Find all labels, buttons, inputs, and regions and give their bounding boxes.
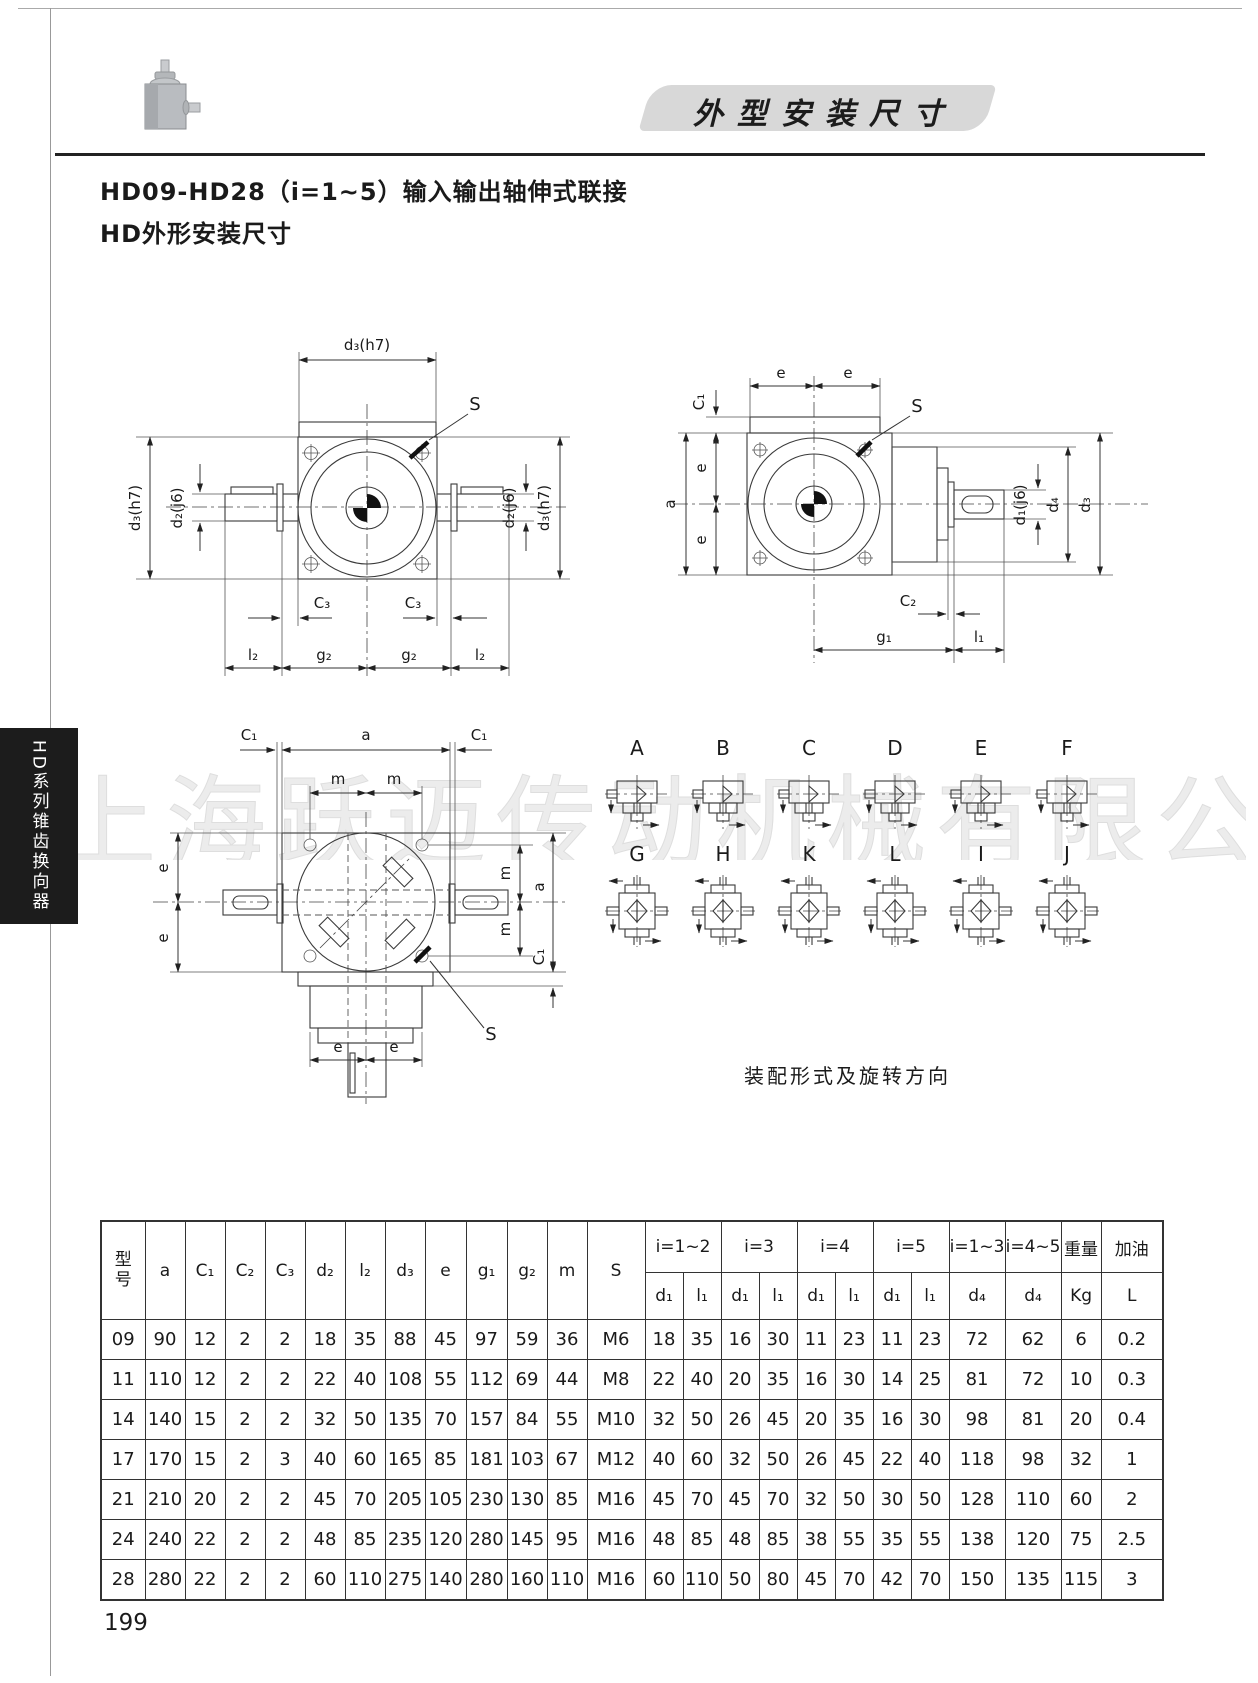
assembly-row-1: A B C D E F: [596, 736, 1108, 836]
svg-text:C₁: C₁: [690, 394, 708, 411]
table-cell: 128: [949, 1480, 1005, 1520]
table-cell: 240: [145, 1520, 185, 1560]
table-cell: 42: [873, 1560, 911, 1601]
table-cell: 11: [797, 1320, 835, 1360]
table-cell: 2: [225, 1560, 265, 1601]
assembly-row-2: G H K L I J: [596, 842, 1108, 954]
svg-text:e: e: [692, 535, 710, 544]
table-cell: 18: [645, 1320, 683, 1360]
table-cell: 110: [547, 1560, 587, 1601]
group-header-i4: i=4: [797, 1221, 873, 1273]
table-cell: 70: [345, 1480, 385, 1520]
gearbox-cross-icon: [1035, 868, 1099, 954]
svg-text:m: m: [331, 770, 346, 788]
assembly-form-f: F: [1026, 736, 1108, 836]
table-cell: 85: [683, 1520, 721, 1560]
table-cell: 72: [949, 1320, 1005, 1360]
table-cell: M16: [587, 1520, 645, 1560]
table-cell: M10: [587, 1400, 645, 1440]
table-cell: 2: [225, 1520, 265, 1560]
table-cell: 48: [645, 1520, 683, 1560]
table-cell: 165: [385, 1440, 425, 1480]
svg-text:C₁: C₁: [471, 726, 488, 744]
table-cell: 45: [797, 1560, 835, 1601]
table-cell: 22: [873, 1440, 911, 1480]
table-cell: 22: [185, 1520, 225, 1560]
table-cell: 21: [101, 1480, 145, 1520]
table-cell: 20: [185, 1480, 225, 1520]
table-cell: 70: [911, 1560, 949, 1601]
svg-text:m: m: [496, 922, 514, 937]
table-cell: 16: [797, 1360, 835, 1400]
svg-text:C₂: C₂: [900, 592, 917, 610]
table-cell: 2: [225, 1480, 265, 1520]
col-header-d3: d₃: [385, 1221, 425, 1320]
table-cell: 11: [101, 1360, 145, 1400]
bevel-gears: [319, 857, 415, 949]
page-number: 199: [104, 1610, 148, 1636]
drawing-side-view: e e C₁ a e e S d₁(j6) d₄ d₃: [618, 318, 1163, 670]
table-cell: 98: [949, 1400, 1005, 1440]
col-header-c2: C₂: [225, 1221, 265, 1320]
table-cell: 235: [385, 1520, 425, 1560]
table-cell: 150: [949, 1560, 1005, 1601]
table-row: 17170152340601658518110367M1240603250264…: [101, 1440, 1163, 1480]
table-cell: 60: [645, 1560, 683, 1601]
col-header-c1: C₁: [185, 1221, 225, 1320]
sub-header-d1: d₁: [645, 1273, 683, 1320]
table-cell: 35: [873, 1520, 911, 1560]
table-cell: 45: [305, 1480, 345, 1520]
table-cell: 30: [911, 1400, 949, 1440]
table-cell: 18: [305, 1320, 345, 1360]
table-cell: 35: [345, 1320, 385, 1360]
table-cell: 36: [547, 1320, 587, 1360]
table-cell: 275: [385, 1560, 425, 1601]
sub-header-l1: l₁: [911, 1273, 949, 1320]
group-header-oil: 加油: [1101, 1221, 1163, 1273]
svg-text:d₃(h7): d₃(h7): [535, 485, 553, 531]
sub-header-d1: d₁: [721, 1273, 759, 1320]
table-cell: 2: [265, 1560, 305, 1601]
table-cell: 40: [345, 1360, 385, 1400]
sub-header-d4: d₄: [949, 1273, 1005, 1320]
table-cell: 40: [305, 1440, 345, 1480]
table-cell: 30: [759, 1320, 797, 1360]
table-row: 212102022457020510523013085M164570457032…: [101, 1480, 1163, 1520]
table-cell: 26: [797, 1440, 835, 1480]
table-cell: 6: [1061, 1320, 1101, 1360]
gearbox-t-icon: [863, 762, 927, 836]
table-cell: 3: [265, 1440, 305, 1480]
table-cell: 62: [1005, 1320, 1061, 1360]
sub-header-l: L: [1101, 1273, 1163, 1320]
gearbox-cross-icon: [691, 868, 755, 954]
table-cell: M16: [587, 1480, 645, 1520]
table-cell: 95: [547, 1520, 587, 1560]
svg-text:d₃(h7): d₃(h7): [126, 485, 144, 531]
gearbox-t-icon: [605, 762, 669, 836]
table-cell: 60: [345, 1440, 385, 1480]
table-cell: 110: [145, 1360, 185, 1400]
table-cell: 11: [873, 1320, 911, 1360]
table-cell: 67: [547, 1440, 587, 1480]
svg-text:m: m: [387, 770, 402, 788]
sub-header-d1: d₁: [797, 1273, 835, 1320]
assembly-caption: 装配形式及旋转方向: [744, 1060, 951, 1089]
group-header-i1-2: i=1~2: [645, 1221, 721, 1273]
svg-text:C₁: C₁: [530, 949, 548, 966]
table-cell: 45: [645, 1480, 683, 1520]
assembly-form-a: A: [596, 736, 678, 836]
table-cell: 20: [1061, 1400, 1101, 1440]
table-cell: 120: [425, 1520, 466, 1560]
table-cell: 70: [759, 1480, 797, 1520]
svg-text:S: S: [485, 1024, 496, 1045]
col-header-s: S: [587, 1221, 645, 1320]
table-cell: 160: [507, 1560, 547, 1601]
col-header-c3: C₃: [265, 1221, 305, 1320]
col-header-l2: l₂: [345, 1221, 385, 1320]
page-top-border: [18, 8, 1242, 9]
table-cell: 70: [835, 1560, 873, 1601]
table-cell: 181: [466, 1440, 507, 1480]
table-cell: 45: [721, 1480, 759, 1520]
table-cell: 20: [721, 1360, 759, 1400]
table-cell: 0.2: [1101, 1320, 1163, 1360]
assembly-form-e: E: [940, 736, 1022, 836]
table-cell: 135: [1005, 1560, 1061, 1601]
svg-text:a: a: [661, 499, 679, 508]
table-cell: 85: [547, 1480, 587, 1520]
gearbox-t-icon: [1035, 762, 1099, 836]
svg-text:a: a: [361, 726, 370, 744]
table-cell: 45: [759, 1400, 797, 1440]
svg-text:d₄: d₄: [1044, 497, 1062, 513]
sub-header-l1: l₁: [683, 1273, 721, 1320]
table-cell: 22: [645, 1360, 683, 1400]
table-cell: 14: [101, 1400, 145, 1440]
gearbox-t-icon: [777, 762, 841, 836]
table-cell: 55: [425, 1360, 466, 1400]
table-cell: 2: [265, 1360, 305, 1400]
svg-text:e: e: [154, 863, 172, 872]
svg-text:a: a: [530, 882, 548, 891]
table-cell: 85: [759, 1520, 797, 1560]
col-header-m: m: [547, 1221, 587, 1320]
table-cell: 205: [385, 1480, 425, 1520]
table-cell: 210: [145, 1480, 185, 1520]
table-cell: 38: [797, 1520, 835, 1560]
table-cell: M6: [587, 1320, 645, 1360]
svg-text:e: e: [843, 364, 852, 382]
table-cell: 60: [683, 1440, 721, 1480]
table-cell: 35: [759, 1360, 797, 1400]
table-cell: 09: [101, 1320, 145, 1360]
table-cell: 32: [645, 1400, 683, 1440]
table-row: 242402222488523512028014595M164885488538…: [101, 1520, 1163, 1560]
table-cell: 280: [145, 1560, 185, 1601]
table-cell: 15: [185, 1400, 225, 1440]
gearbox-cross-icon: [777, 868, 841, 954]
table-cell: 50: [911, 1480, 949, 1520]
svg-text:d₃: d₃: [1076, 497, 1094, 513]
assembly-form-d: D: [854, 736, 936, 836]
table-cell: 120: [1005, 1520, 1061, 1560]
table-cell: 44: [547, 1360, 587, 1400]
table-cell: 85: [425, 1440, 466, 1480]
table-cell: 112: [466, 1360, 507, 1400]
table-cell: 23: [911, 1320, 949, 1360]
table-cell: 30: [835, 1360, 873, 1400]
table-cell: 85: [345, 1520, 385, 1560]
table-cell: 1: [1101, 1440, 1163, 1480]
table-cell: 14: [873, 1360, 911, 1400]
table-cell: 24: [101, 1520, 145, 1560]
table-cell: 2: [225, 1440, 265, 1480]
drawing-top-view: C₁ a C₁ m m e e m m a C₁ e e: [108, 662, 590, 1114]
gearbox-t-icon: [691, 762, 755, 836]
table-cell: 70: [683, 1480, 721, 1520]
table-cell: 110: [345, 1560, 385, 1601]
sidebar-series-tab: HD系列锥齿换向器: [0, 728, 78, 924]
svg-text:S: S: [469, 394, 480, 415]
table-cell: 103: [507, 1440, 547, 1480]
sub-header-d4: d₄: [1005, 1273, 1061, 1320]
col-header-model: 型 号: [101, 1221, 145, 1320]
table-row: 0990122218358845975936M61835163011231123…: [101, 1320, 1163, 1360]
group-header-i3: i=3: [721, 1221, 797, 1273]
table-cell: 35: [835, 1400, 873, 1440]
table-cell: 105: [425, 1480, 466, 1520]
svg-text:e: e: [333, 1038, 342, 1056]
table-cell: 3: [1101, 1560, 1163, 1601]
table-cell: 22: [185, 1560, 225, 1601]
table-cell: 98: [1005, 1440, 1061, 1480]
table-cell: 88: [385, 1320, 425, 1360]
table-cell: 108: [385, 1360, 425, 1400]
table-cell: 20: [797, 1400, 835, 1440]
product-photo: [126, 58, 204, 148]
table-cell: 50: [721, 1560, 759, 1601]
table-cell: 40: [683, 1360, 721, 1400]
assembly-forms: A B C D E F G H K L I J: [596, 736, 1108, 960]
group-header-i5: i=5: [873, 1221, 949, 1273]
table-cell: 280: [466, 1560, 507, 1601]
table-cell: 45: [835, 1440, 873, 1480]
table-cell: 55: [547, 1400, 587, 1440]
table-cell: 130: [507, 1480, 547, 1520]
svg-text:e: e: [154, 933, 172, 942]
group-header-i4-5: i=4~5: [1005, 1221, 1061, 1273]
svg-text:g₁: g₁: [876, 628, 892, 646]
table-cell: 12: [185, 1360, 225, 1400]
table-cell: 22: [305, 1360, 345, 1400]
table-cell: 55: [835, 1520, 873, 1560]
table-cell: 15: [185, 1440, 225, 1480]
table-cell: 75: [1061, 1520, 1101, 1560]
group-header-weight: 重量: [1061, 1221, 1101, 1273]
doc-title-line1: HD09-HD28（i=1~5）输入输出轴伸式联接: [100, 172, 628, 207]
svg-text:e: e: [692, 463, 710, 472]
table-cell: 16: [873, 1400, 911, 1440]
table-cell: 45: [425, 1320, 466, 1360]
table-cell: M16: [587, 1560, 645, 1601]
table-cell: 2: [225, 1360, 265, 1400]
table-cell: 97: [466, 1320, 507, 1360]
table-cell: 170: [145, 1440, 185, 1480]
gearbox-cross-icon: [949, 868, 1013, 954]
table-row: 1111012222240108551126944M82240203516301…: [101, 1360, 1163, 1400]
table-cell: 140: [425, 1560, 466, 1601]
assembly-form-k: K: [768, 842, 850, 954]
header-rule: [55, 153, 1205, 156]
table-cell: 157: [466, 1400, 507, 1440]
table-cell: 17: [101, 1440, 145, 1480]
dimensions-table: 型 号 a C₁ C₂ C₃ d₂ l₂ d₃ e g₁ g₂ m S i=1~…: [100, 1220, 1164, 1601]
assembly-form-g: G: [596, 842, 678, 954]
col-header-d2: d₂: [305, 1221, 345, 1320]
table-body: 0990122218358845975936M61835163011231123…: [101, 1320, 1163, 1601]
table-cell: 2: [225, 1400, 265, 1440]
sidebar-series-label: HD系列锥齿换向器: [27, 740, 52, 912]
svg-text:d₂(j6): d₂(j6): [168, 488, 186, 529]
table-cell: 118: [949, 1440, 1005, 1480]
gearbox-cross-icon: [863, 868, 927, 954]
col-header-g1: g₁: [466, 1221, 507, 1320]
col-header-g2: g₂: [507, 1221, 547, 1320]
table-cell: 280: [466, 1520, 507, 1560]
assembly-form-j: J: [1026, 842, 1108, 954]
gearbox-t-icon: [949, 762, 1013, 836]
svg-text:d₃(h7): d₃(h7): [344, 336, 390, 354]
svg-text:S: S: [911, 396, 922, 417]
table-cell: 32: [797, 1480, 835, 1520]
table-cell: 32: [721, 1440, 759, 1480]
svg-text:e: e: [389, 1038, 398, 1056]
table-cell: 32: [305, 1400, 345, 1440]
table-cell: 2.5: [1101, 1520, 1163, 1560]
table-cell: 48: [721, 1520, 759, 1560]
table-cell: 60: [1061, 1480, 1101, 1520]
table-cell: 35: [683, 1320, 721, 1360]
table-cell: 2: [265, 1480, 305, 1520]
table-cell: 81: [1005, 1400, 1061, 1440]
table-cell: 55: [911, 1520, 949, 1560]
table-cell: 2: [265, 1320, 305, 1360]
svg-text:m: m: [496, 866, 514, 881]
table-cell: 2: [225, 1320, 265, 1360]
svg-text:C₁: C₁: [241, 726, 258, 744]
svg-text:e: e: [776, 364, 785, 382]
table-header-row-1: 型 号 a C₁ C₂ C₃ d₂ l₂ d₃ e g₁ g₂ m S i=1~…: [101, 1221, 1163, 1273]
table-row: 28280222260110275140280160110M1660110508…: [101, 1560, 1163, 1601]
table-cell: 40: [911, 1440, 949, 1480]
table-cell: 140: [145, 1400, 185, 1440]
assembly-form-h: H: [682, 842, 764, 954]
table-cell: 110: [1005, 1480, 1061, 1520]
section-banner-title: 外型安装尺寸: [660, 89, 990, 133]
table-cell: M8: [587, 1360, 645, 1400]
table-cell: 60: [305, 1560, 345, 1601]
table-cell: 0.4: [1101, 1400, 1163, 1440]
table-cell: 145: [507, 1520, 547, 1560]
assembly-form-c: C: [768, 736, 850, 836]
table-cell: 30: [873, 1480, 911, 1520]
table-cell: 2: [1101, 1480, 1163, 1520]
table-cell: 84: [507, 1400, 547, 1440]
col-header-a: a: [145, 1221, 185, 1320]
table-cell: 50: [835, 1480, 873, 1520]
table-cell: 26: [721, 1400, 759, 1440]
table-cell: 110: [683, 1560, 721, 1601]
table-cell: 25: [911, 1360, 949, 1400]
svg-text:d₁(j6): d₁(j6): [1011, 485, 1029, 526]
table-cell: 80: [759, 1560, 797, 1601]
table-cell: 12: [185, 1320, 225, 1360]
table-cell: 50: [683, 1400, 721, 1440]
gearbox-cross-icon: [605, 868, 669, 954]
svg-text:l₁: l₁: [974, 628, 984, 646]
assembly-form-b: B: [682, 736, 764, 836]
svg-text:C₃: C₃: [314, 594, 331, 612]
table-cell: 0.3: [1101, 1360, 1163, 1400]
drawing-front-view: d₃(h7) d₃(h7) d₂(j6) d₂(j6) d₃(h7) S C₃ …: [108, 292, 590, 684]
table-cell: 135: [385, 1400, 425, 1440]
table-cell: 2: [265, 1520, 305, 1560]
table-cell: 40: [645, 1440, 683, 1480]
table-cell: 81: [949, 1360, 1005, 1400]
table-cell: 28: [101, 1560, 145, 1601]
table-cell: 70: [425, 1400, 466, 1440]
col-header-e: e: [425, 1221, 466, 1320]
table-cell: 50: [345, 1400, 385, 1440]
table-cell: 48: [305, 1520, 345, 1560]
sub-header-d1: d₁: [873, 1273, 911, 1320]
group-header-i1-3: i=1~3: [949, 1221, 1005, 1273]
table-cell: 90: [145, 1320, 185, 1360]
assembly-form-i: I: [940, 842, 1022, 954]
assembly-form-l: L: [854, 842, 936, 954]
table-cell: 16: [721, 1320, 759, 1360]
table-cell: 32: [1061, 1440, 1101, 1480]
table-cell: M12: [587, 1440, 645, 1480]
catalog-page: 外型安装尺寸 HD09-HD28（i=1~5）输入输出轴伸式联接 HD外形安装尺…: [0, 0, 1258, 1683]
table-cell: 69: [507, 1360, 547, 1400]
sub-header-l1: l₁: [759, 1273, 797, 1320]
table-cell: 10: [1061, 1360, 1101, 1400]
table-cell: 2: [265, 1400, 305, 1440]
table-cell: 23: [835, 1320, 873, 1360]
table-cell: 50: [759, 1440, 797, 1480]
sub-header-kg: Kg: [1061, 1273, 1101, 1320]
svg-text:C₃: C₃: [405, 594, 422, 612]
table-cell: 72: [1005, 1360, 1061, 1400]
table-cell: 138: [949, 1520, 1005, 1560]
table-cell: 59: [507, 1320, 547, 1360]
sub-header-l1: l₁: [835, 1273, 873, 1320]
table-cell: 230: [466, 1480, 507, 1520]
doc-title-line2: HD外形安装尺寸: [100, 214, 292, 249]
table-row: 1414015223250135701578455M10325026452035…: [101, 1400, 1163, 1440]
table-cell: 115: [1061, 1560, 1101, 1601]
